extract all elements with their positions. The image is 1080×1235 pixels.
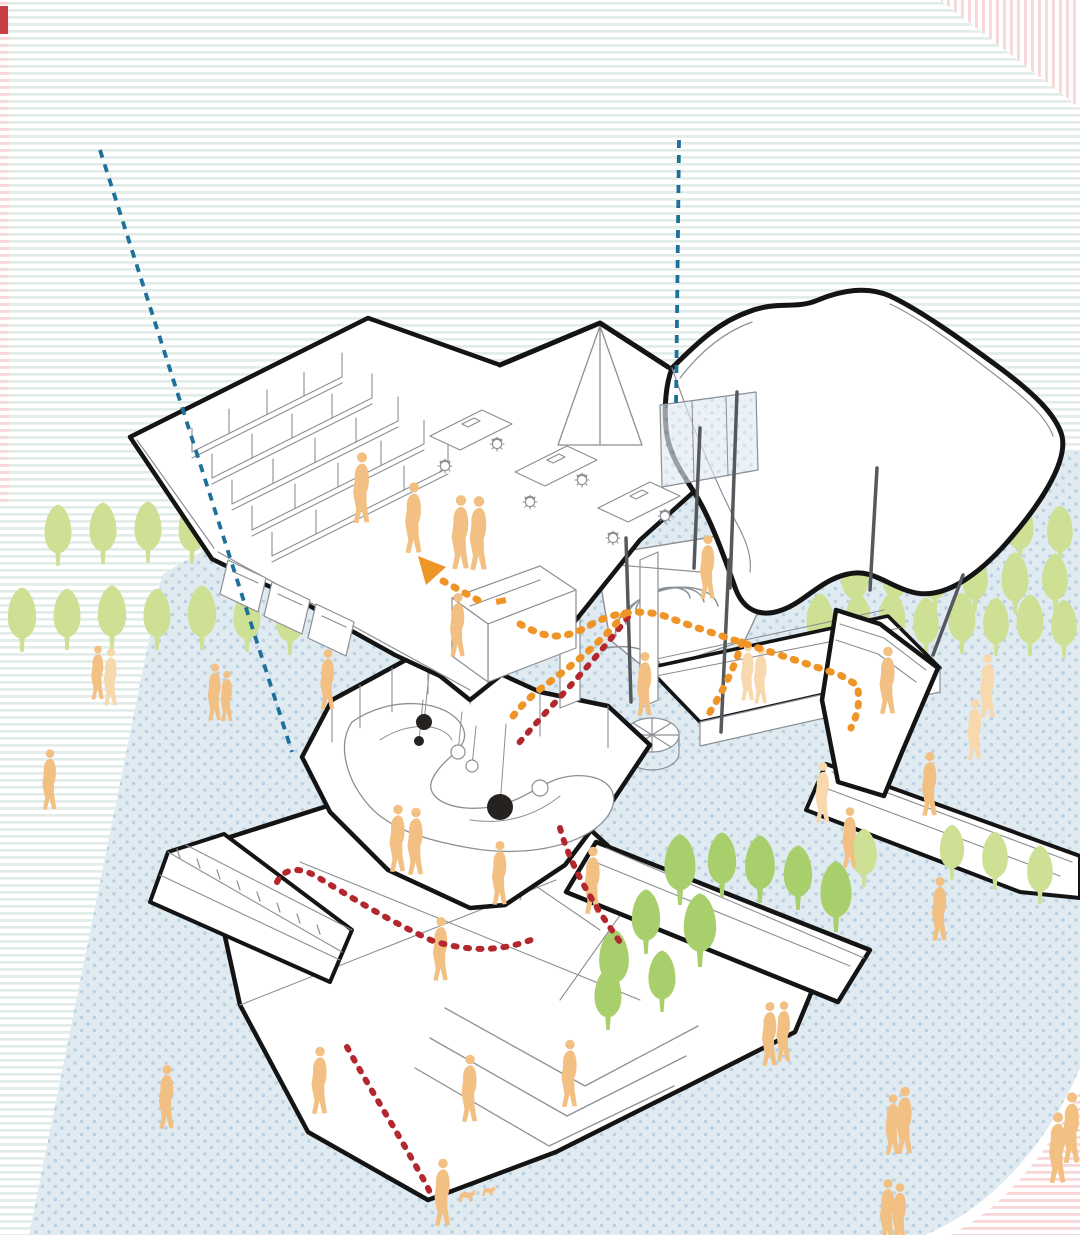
canopy-glass-wall	[660, 392, 758, 487]
pendant-ring-2	[466, 760, 478, 772]
pendant-sphere-mid	[416, 714, 432, 730]
pendant-ring-1	[451, 745, 465, 759]
pendant-ring-3	[532, 780, 548, 796]
pendant-sphere-small	[414, 736, 424, 746]
pink-stripe-left-band	[0, 0, 9, 505]
red-corner-square	[0, 6, 8, 34]
pendant-sphere-large	[487, 794, 513, 820]
exploded-axonometric-diagram	[0, 0, 1080, 1235]
